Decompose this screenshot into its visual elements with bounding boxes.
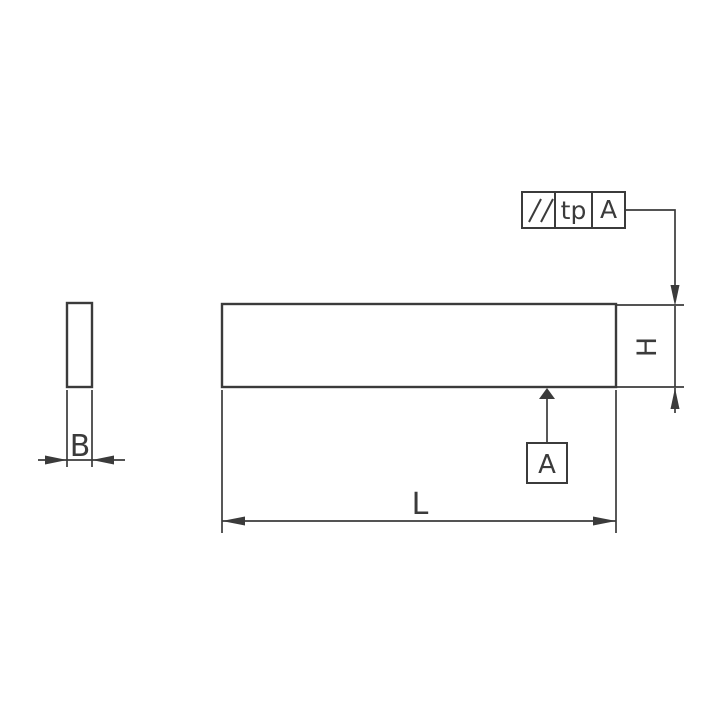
dimension-arrowhead-icon (593, 517, 616, 526)
front-view (222, 304, 616, 387)
fcf-datum-reference: A (600, 195, 617, 224)
dimension-arrowhead-icon (671, 388, 680, 409)
width-dimension: B (38, 390, 125, 467)
fcf-leader-line (625, 210, 680, 306)
dimension-arrowhead-icon (45, 456, 67, 465)
side-view-outline (67, 303, 92, 387)
engineering-drawing: tp A H A (0, 0, 720, 720)
dimension-arrowhead-icon (222, 517, 245, 526)
dimension-arrowhead-icon (92, 456, 114, 465)
width-dimension-label: B (70, 429, 91, 464)
datum-feature-symbol: A (527, 388, 567, 483)
feature-control-frame: tp A (522, 192, 625, 228)
leader-arrowhead-icon (671, 285, 680, 306)
datum-label: A (538, 450, 556, 480)
datum-triangle-icon (539, 388, 555, 399)
leader-path (625, 210, 675, 286)
height-dimension: H (616, 305, 684, 413)
side-view (67, 303, 92, 387)
fcf-tolerance-value: tp (561, 196, 587, 225)
height-dimension-label: H (632, 337, 663, 357)
length-dimension-label: L (412, 487, 429, 522)
front-view-outline (222, 304, 616, 387)
technical-drawing-canvas: tp A H A (0, 0, 720, 720)
